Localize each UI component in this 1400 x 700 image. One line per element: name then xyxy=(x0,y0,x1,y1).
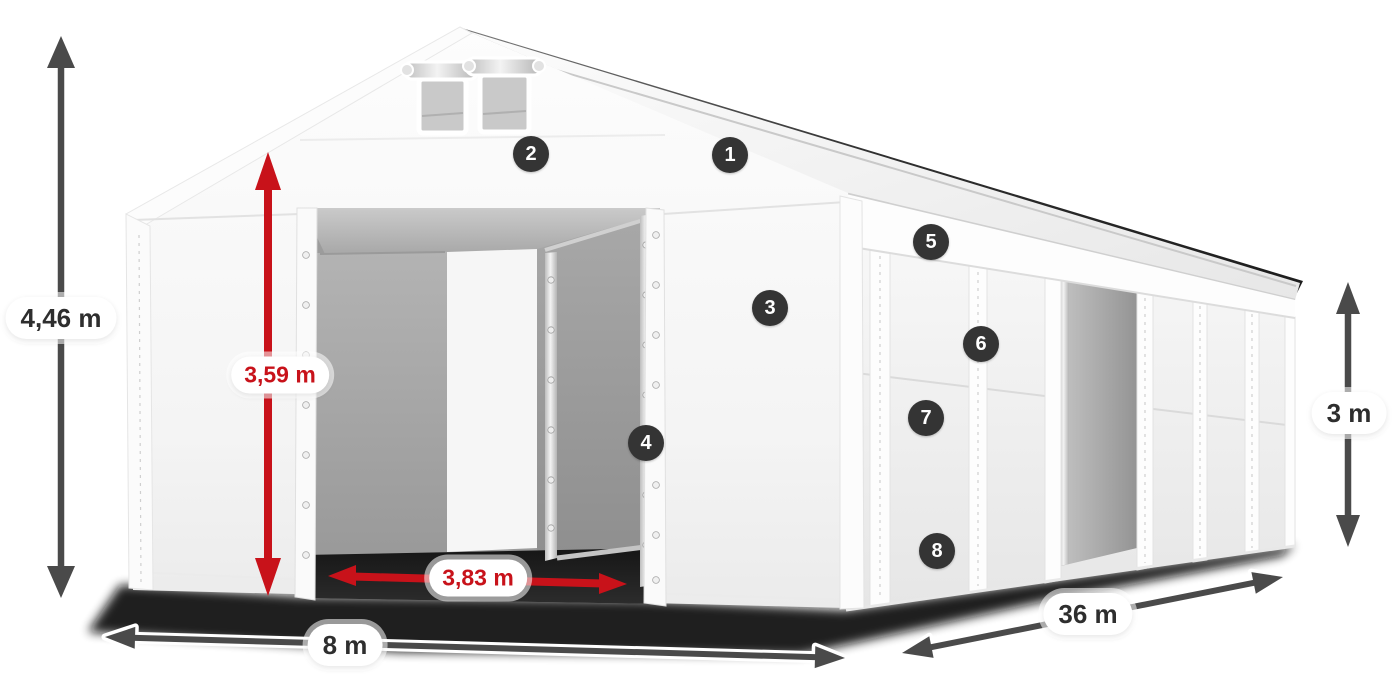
feature-marker-5: 5 xyxy=(913,224,949,260)
tent-illustration xyxy=(0,0,1400,700)
feature-marker-1: 1 xyxy=(712,137,748,173)
feature-marker-3: 3 xyxy=(752,290,788,326)
tent-dimension-diagram: 4,46 m 3,59 m 3,83 m 8 m 36 m 3 m 1 2 3 … xyxy=(0,0,1400,700)
total-height-label: 4,46 m xyxy=(6,297,117,339)
feature-marker-8: 8 xyxy=(919,533,955,569)
feature-marker-4: 4 xyxy=(628,425,664,461)
feature-marker-7: 7 xyxy=(908,400,944,436)
length-label: 36 m xyxy=(1043,593,1132,635)
entrance-height-label: 3,59 m xyxy=(231,357,329,394)
wall-height-label: 3 m xyxy=(1312,392,1387,434)
gable-width-label: 8 m xyxy=(308,624,383,666)
entrance-opening xyxy=(295,208,666,606)
feature-marker-2: 2 xyxy=(513,136,549,172)
entrance-width-label: 3,83 m xyxy=(429,560,527,597)
feature-marker-6: 6 xyxy=(963,326,999,362)
